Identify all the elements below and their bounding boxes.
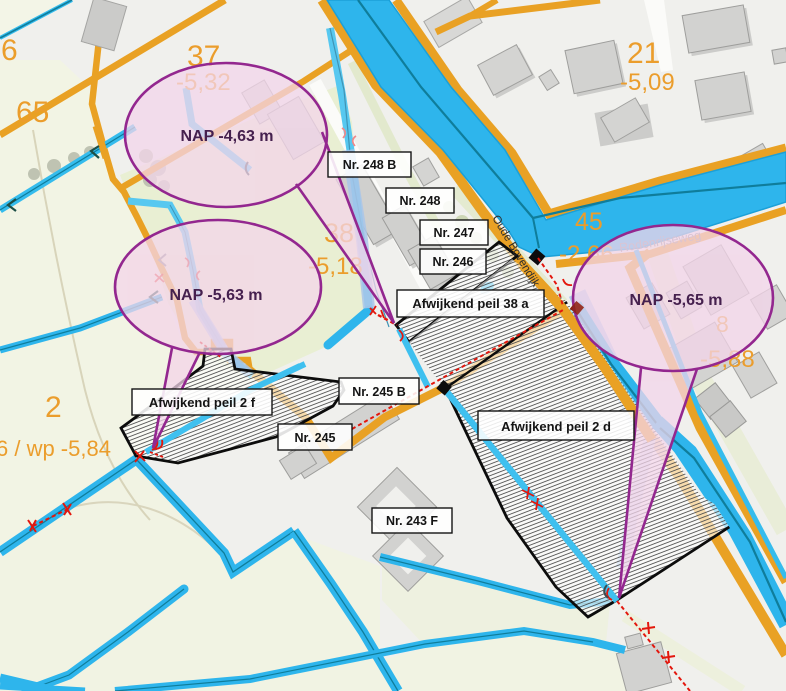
svg-text:65: 65 [16,96,49,129]
svg-text:21: 21 [627,37,660,70]
svg-text:NAP -5,65 m: NAP -5,65 m [629,292,722,309]
svg-text:Afwijkend peil 2 f: Afwijkend peil 2 f [149,395,256,410]
svg-text:Nr. 245: Nr. 245 [294,431,335,445]
svg-text:Nr. 247: Nr. 247 [433,226,474,240]
svg-text:NAP -5,63 m: NAP -5,63 m [169,287,262,304]
svg-text:Afwijkend peil 38 a: Afwijkend peil 38 a [412,296,529,311]
svg-text:Afwijkend peil 2 d: Afwijkend peil 2 d [501,419,611,434]
svg-text:NAP -4,63 m: NAP -4,63 m [180,128,273,145]
svg-text:Nr. 248: Nr. 248 [399,194,440,208]
svg-text:6 / wp -5,84: 6 / wp -5,84 [0,436,111,461]
svg-text:6: 6 [1,34,18,67]
svg-text:45: 45 [575,208,603,236]
svg-text:Nr. 245 B: Nr. 245 B [352,385,406,399]
svg-text:Nr. 243 F: Nr. 243 F [386,514,438,528]
svg-text:-5,09: -5,09 [620,69,675,96]
svg-text:Nr. 248 B: Nr. 248 B [343,158,397,172]
svg-text:2: 2 [45,391,62,424]
svg-text:Nr. 246: Nr. 246 [432,255,473,269]
